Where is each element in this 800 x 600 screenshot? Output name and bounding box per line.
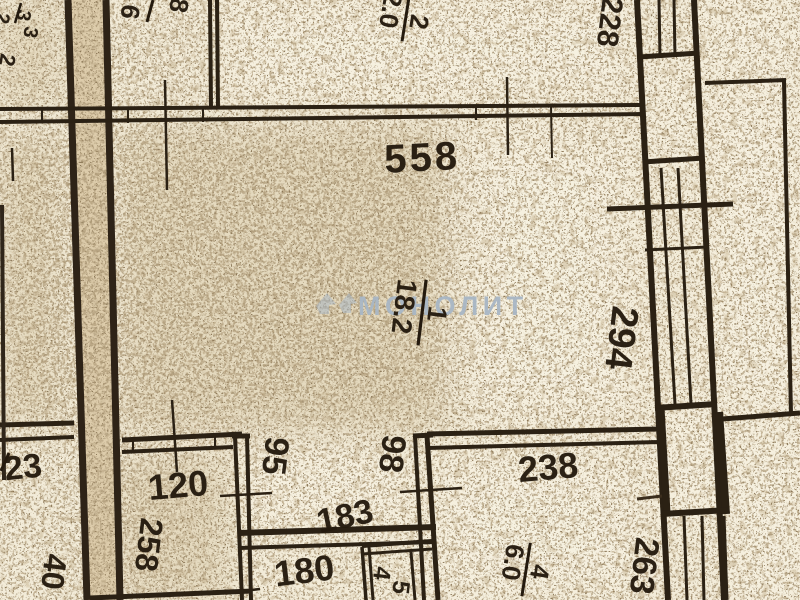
- svg-text:558: 558: [383, 134, 461, 182]
- svg-text:40: 40: [34, 552, 74, 592]
- svg-text:18.2: 18.2: [385, 278, 422, 336]
- svg-text:6.0: 6.0: [495, 542, 530, 582]
- svg-text:23: 23: [2, 447, 44, 489]
- svg-text:2.0: 2.0: [373, 0, 408, 30]
- svg-text:263: 263: [622, 535, 667, 596]
- svg-text:95: 95: [254, 435, 296, 477]
- svg-text:258: 258: [128, 516, 170, 573]
- svg-text:294: 294: [596, 304, 645, 372]
- svg-text:238: 238: [516, 444, 579, 490]
- svg-text:98: 98: [371, 433, 413, 475]
- svg-text:180: 180: [272, 546, 337, 594]
- svg-text:120: 120: [146, 462, 209, 508]
- svg-text:228: 228: [590, 0, 629, 49]
